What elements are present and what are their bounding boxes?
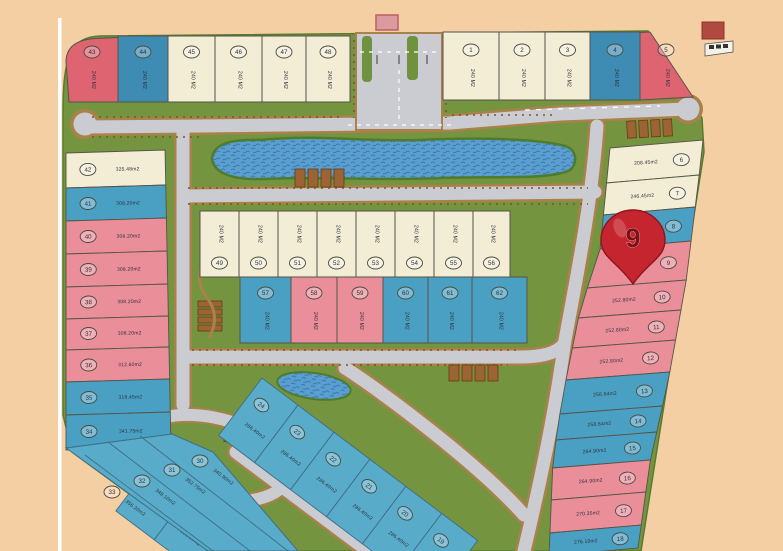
lot-number: 12	[647, 355, 655, 363]
pin-label: 9	[625, 223, 640, 253]
site-plan-page: 43240 M244240 M245240 M246240 M247240 M2…	[0, 0, 783, 551]
lot-42[interactable]: 42325.48m2	[66, 150, 166, 188]
lot-number: 61	[447, 290, 454, 297]
lot-number: 31	[169, 467, 176, 474]
lot-number: 40	[85, 234, 93, 241]
lot-area: 240 M2	[257, 225, 263, 243]
lot-area: 240 M2	[264, 312, 270, 330]
lot-area: 240 M2	[326, 71, 332, 89]
lot-number: 48	[325, 49, 332, 56]
lot-48[interactable]: 48240 M2	[306, 36, 350, 102]
lot-number: 60	[402, 290, 409, 297]
lot-shape	[443, 32, 499, 100]
pond	[212, 138, 575, 179]
lot-56[interactable]: 56240 M2	[473, 211, 510, 277]
lot-46[interactable]: 46240 M2	[215, 36, 262, 102]
lot-area: 240 M2	[664, 69, 670, 87]
lot-area: 240 M2	[469, 69, 475, 87]
lot-area: 318.45m2	[118, 394, 142, 400]
culdesac-west	[74, 113, 97, 136]
white-divider-line	[58, 18, 62, 551]
lot-61[interactable]: 61240 M2	[428, 277, 472, 343]
lot-number: 15	[629, 445, 637, 453]
lot-number: 30	[197, 458, 204, 465]
lot-area: 240 M2	[520, 69, 526, 87]
lot-area: 240 M2	[498, 312, 504, 330]
lot-number: 39	[85, 267, 93, 274]
lot-area: 312.60m2	[118, 362, 142, 368]
lot-number: 58	[311, 290, 318, 297]
lot-number: 49	[216, 260, 223, 267]
lot-number: 56	[488, 260, 495, 267]
lot-number: 59	[357, 290, 364, 297]
lot-number: 41	[85, 201, 93, 208]
lot-number: 50	[255, 260, 262, 267]
lot-number: 13	[641, 388, 649, 396]
lot-area: 240 M2	[452, 225, 458, 243]
lot-area: 325.48m2	[116, 166, 140, 172]
lot-35[interactable]: 35318.45m2	[66, 379, 170, 415]
lot-number: 14	[634, 418, 642, 426]
lot-area: 240 M2	[141, 71, 147, 89]
lot-36[interactable]: 36312.60m2	[66, 347, 170, 382]
lot-area: 308.20m2	[116, 233, 140, 239]
entrance-road	[348, 33, 452, 130]
lot-area: 240 M2	[448, 312, 454, 330]
lot-38[interactable]: 38308.20m2	[66, 284, 168, 319]
lot-39[interactable]: 39308.20m2	[66, 251, 168, 287]
lot-area: 308.20m2	[117, 299, 141, 305]
lot-number: 37	[85, 331, 93, 338]
road-b	[183, 192, 595, 196]
lot-area: 240 M2	[613, 69, 619, 87]
lot-49[interactable]: 49240 M2	[200, 211, 239, 277]
site-plan-map: 43240 M244240 M245240 M246240 M247240 M2…	[0, 0, 783, 551]
lot-number: 36	[85, 362, 93, 369]
lot-51[interactable]: 51240 M2	[278, 211, 317, 277]
lot-4[interactable]: 4240 M2	[590, 32, 640, 100]
lot-3[interactable]: 3240 M2	[545, 32, 590, 100]
lot-50[interactable]: 50240 M2	[239, 211, 278, 277]
lot-2[interactable]: 2240 M2	[499, 32, 545, 100]
lot-number: 4	[613, 47, 617, 54]
lot-60[interactable]: 60240 M2	[383, 277, 428, 343]
lot-number: 44	[140, 49, 147, 56]
lot-number: 53	[372, 260, 379, 267]
lot-52[interactable]: 52240 M2	[317, 211, 356, 277]
lot-number: 34	[86, 429, 94, 436]
lot-1[interactable]: 1240 M2	[443, 32, 499, 100]
lot-area: 240 M2	[358, 312, 364, 330]
lot-58[interactable]: 58240 M2	[291, 277, 337, 343]
lot-37[interactable]: 37308.20m2	[66, 316, 169, 350]
lot-area: 240 M2	[374, 225, 380, 243]
lot-41[interactable]: 41308.20m2	[66, 185, 166, 221]
lot-number: 3	[566, 47, 570, 54]
lot-number: 33	[109, 489, 116, 496]
lot-area: 240 M2	[335, 225, 341, 243]
lot-43[interactable]: 43240 M2	[66, 38, 118, 103]
lot-area: 240 M2	[282, 71, 288, 89]
lot-number: 47	[281, 49, 288, 56]
lot-number: 46	[235, 49, 242, 56]
lot-44[interactable]: 44240 M2	[118, 36, 168, 102]
lot-number: 62	[496, 290, 503, 297]
lot-number: 11	[653, 324, 660, 331]
lot-area: 240 M2	[237, 71, 243, 89]
lot-number: 38	[85, 299, 93, 306]
lot-number: 16	[624, 475, 632, 483]
lot-area: 341.75m2	[119, 428, 143, 434]
lot-number: 51	[294, 260, 301, 267]
lot-area: 240 M2	[190, 71, 196, 89]
lot-shape	[545, 32, 590, 100]
lot-number: 45	[188, 49, 195, 56]
lot-area: 240 M2	[490, 225, 496, 243]
lot-53[interactable]: 53240 M2	[356, 211, 395, 277]
lot-area: 240 M2	[566, 69, 572, 87]
lot-area: 308.20m2	[118, 330, 142, 336]
lot-number: 32	[139, 478, 146, 485]
lot-number: 55	[450, 260, 457, 267]
lot-number: 18	[617, 536, 625, 544]
lot-59[interactable]: 59240 M2	[337, 277, 383, 343]
lot-number: 54	[411, 260, 418, 267]
lot-number: 57	[262, 290, 269, 297]
entrance-median-right	[407, 36, 418, 80]
lot-shape	[499, 32, 545, 100]
lot-area: 240 M2	[218, 225, 224, 243]
lot-area: 308.20m2	[117, 266, 141, 272]
entrance-median-left	[362, 36, 372, 82]
lot-area: 240 M2	[413, 225, 419, 243]
lot-number: 35	[85, 395, 93, 402]
lot-area: 308.20m2	[116, 200, 140, 206]
lot-55[interactable]: 55240 M2	[434, 211, 473, 277]
lot-number: 10	[659, 294, 667, 302]
lot-number: 42	[84, 167, 92, 174]
lot-number: 17	[620, 508, 628, 516]
lot-number: 2	[520, 47, 524, 54]
lot-62[interactable]: 62240 M2	[472, 277, 527, 343]
lot-area: 240 M2	[90, 71, 96, 89]
lot-54[interactable]: 54240 M2	[395, 211, 434, 277]
lot-shape	[590, 32, 640, 100]
lot-number: 43	[89, 49, 96, 56]
lot-45[interactable]: 45240 M2	[168, 36, 215, 102]
legend-square	[702, 22, 724, 39]
lot-area: 240 M2	[404, 312, 410, 330]
lot-40[interactable]: 40308.20m2	[66, 218, 167, 254]
lot-number: 5	[664, 47, 668, 54]
culdesac-east	[677, 98, 700, 121]
lot-number: 1	[469, 47, 473, 54]
lot-number: 52	[333, 260, 340, 267]
lot-area: 240 M2	[312, 312, 318, 330]
lot-57[interactable]: 57240 M2	[240, 277, 291, 343]
lot-47[interactable]: 47240 M2	[262, 36, 306, 102]
lot-area: 240 M2	[296, 225, 302, 243]
gate-marker	[376, 15, 398, 30]
